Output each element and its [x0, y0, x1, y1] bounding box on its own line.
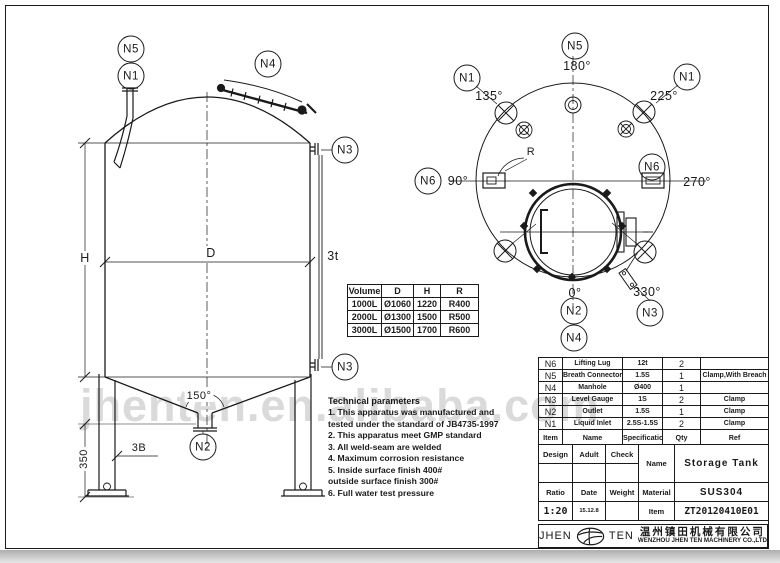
weight-value — [606, 502, 639, 521]
dim-h: H — [78, 251, 92, 265]
part-spec: 1.5S — [623, 370, 663, 382]
tech-item: 2. This apparatus meet GMP standard — [328, 430, 543, 442]
material-value: SUS304 — [675, 483, 769, 502]
part-item: N4 — [539, 382, 563, 394]
parts-row: N3 Level Gauge 1S 2 Clamp — [539, 394, 769, 406]
part-ref: Clamp,With Breach — [701, 370, 769, 382]
part-item: N2 — [539, 406, 563, 418]
part-spec: 12t — [623, 358, 663, 370]
dim-cone-angle: 150° — [185, 390, 214, 402]
part-name: Manhole — [563, 382, 623, 394]
part-name: Lifting Lug — [563, 358, 623, 370]
size-cell: R400 — [441, 298, 479, 311]
part-qty: 1 — [663, 406, 701, 418]
part-spec: Ø400 — [623, 382, 663, 394]
tb-check-label: Check — [606, 445, 639, 464]
parts-row: N2 Outlet 1.5S 1 Clamp — [539, 406, 769, 418]
tb-design-label: Design — [539, 445, 573, 464]
angle-180: 180° — [563, 59, 591, 73]
angle-270: 270° — [683, 175, 711, 189]
part-item: N5 — [539, 370, 563, 382]
size-table: Volume D H R 1000L Ø1060 1220 R400 2000L… — [347, 284, 479, 337]
tv-callout-n3: N3 — [637, 300, 664, 327]
callout-n4: N4 — [255, 51, 282, 78]
tv-callout-n1-left: N1 — [454, 65, 481, 92]
part-qty: 2 — [663, 394, 701, 406]
part-ref: Clamp — [701, 394, 769, 406]
size-header: R — [441, 285, 479, 298]
parts-row: N5 Breath Connector 1.5S 1 Clamp,With Br… — [539, 370, 769, 382]
size-table-row: 1000L Ø1060 1220 R400 — [348, 298, 479, 311]
callout-n3-top: N3 — [332, 137, 359, 164]
angle-0: 0° — [569, 286, 582, 300]
tb-check-value — [606, 464, 639, 483]
callout-n2: N2 — [190, 434, 217, 461]
size-cell: 1220 — [414, 298, 441, 311]
part-name: Level Gauge — [563, 394, 623, 406]
callout-n1: N1 — [118, 63, 145, 90]
tb-design-value — [539, 464, 573, 483]
tv-callout-n6-right: N6 — [639, 154, 666, 181]
part-item: N1 — [539, 418, 563, 430]
company-name-en: WENZHOU JHEN TEN MACHINERY CO.,LTD — [638, 538, 767, 545]
tv-callout-n4: N4 — [561, 325, 588, 352]
size-cell: 2000L — [348, 311, 382, 324]
part-name: Outlet — [563, 406, 623, 418]
tb-date-label: Date — [573, 483, 606, 502]
part-qty: 2 — [663, 418, 701, 430]
title-block: Design Adult Check Name Storage Tank Rat… — [538, 444, 769, 521]
size-table-row: 2000L Ø1300 1500 R500 — [348, 311, 479, 324]
radius-label: R — [527, 146, 535, 158]
dim-3b: 3B — [132, 442, 146, 454]
part-qty: 1 — [663, 370, 701, 382]
page-bottom-strip — [0, 550, 780, 563]
ratio-value: 1:20 — [539, 502, 573, 521]
tech-item: 5. Inside surface finish 400# outside su… — [328, 465, 543, 488]
parts-row: N4 Manhole Ø400 1 — [539, 382, 769, 394]
dim-d: D — [204, 246, 218, 260]
part-ref: Clamp — [701, 418, 769, 430]
tech-item: 6. Full water test pressure — [328, 488, 543, 500]
brand-right: TEN — [609, 530, 634, 542]
tv-callout-n1-right: N1 — [674, 64, 701, 91]
dim-3t: 3t — [327, 249, 338, 263]
company-names: 温州镇田机械有限公司 WENZHOU JHEN TEN MACHINERY CO… — [638, 527, 767, 545]
size-cell: R500 — [441, 311, 479, 324]
callout-n5: N5 — [118, 36, 145, 63]
tb-ratio-label: Ratio — [539, 483, 573, 502]
date-value: 15.12.8 — [573, 502, 606, 521]
dim-350: 350 — [78, 447, 90, 471]
size-cell: Ø1060 — [382, 298, 414, 311]
tv-callout-n2: N2 — [561, 298, 588, 325]
tb-audit-value — [573, 464, 606, 483]
parts-table: N6 Lifting Lug 12t 2 N5 Breath Connector… — [538, 357, 769, 445]
technical-parameters: Technical parameters 1. This apparatus w… — [328, 396, 543, 499]
size-header: Volume — [348, 285, 382, 298]
size-table-row: 3000L Ø1500 1700 R600 — [348, 324, 479, 337]
size-cell: Ø1300 — [382, 311, 414, 324]
parts-header-item: Item — [539, 430, 563, 445]
brand-left: JHEN — [539, 530, 572, 542]
drawing-number: ZT20120410E01 — [675, 502, 769, 521]
parts-header-row: Item Name Specification Qty Ref — [539, 430, 769, 445]
jhenten-logo-icon — [576, 527, 605, 546]
size-cell: 1000L — [348, 298, 382, 311]
size-header: D — [382, 285, 414, 298]
size-cell: Ø1500 — [382, 324, 414, 337]
tb-name-label: Name — [639, 445, 675, 483]
size-cell: 1700 — [414, 324, 441, 337]
tb-item-label: Item — [639, 502, 675, 521]
angle-90: 90° — [448, 174, 468, 188]
part-name: Liquid Inlet — [563, 418, 623, 430]
callout-n3-bottom: N3 — [332, 354, 359, 381]
size-header: H — [414, 285, 441, 298]
tech-item: 1. This apparatus was manufactured and t… — [328, 407, 543, 430]
angle-330: 330° — [633, 285, 661, 299]
size-cell: R600 — [441, 324, 479, 337]
part-name: Breath Connector — [563, 370, 623, 382]
drawing-title: Storage Tank — [675, 445, 769, 483]
tech-title: Technical parameters — [328, 396, 543, 406]
part-spec: 1S — [623, 394, 663, 406]
tv-callout-n5: N5 — [562, 33, 589, 60]
part-item: N6 — [539, 358, 563, 370]
part-item: N3 — [539, 394, 563, 406]
parts-header-name: Name — [563, 430, 623, 445]
part-spec: 2.5S-1.5S — [623, 418, 663, 430]
parts-header-spec: Specification — [623, 430, 663, 445]
part-spec: 1.5S — [623, 406, 663, 418]
parts-header-qty: Qty — [663, 430, 701, 445]
parts-row: N6 Lifting Lug 12t 2 — [539, 358, 769, 370]
tv-callout-n6-left: N6 — [415, 168, 442, 195]
parts-row: N1 Liquid Inlet 2.5S-1.5S 2 Clamp — [539, 418, 769, 430]
part-qty: 2 — [663, 358, 701, 370]
tech-item: 3. All weld-seam are welded — [328, 442, 543, 454]
part-ref — [701, 382, 769, 394]
size-cell: 3000L — [348, 324, 382, 337]
size-cell: 1500 — [414, 311, 441, 324]
angle-225: 225° — [650, 89, 678, 103]
parts-header-ref: Ref — [701, 430, 769, 445]
part-ref — [701, 358, 769, 370]
size-table-header-row: Volume D H R — [348, 285, 479, 298]
tech-item: 4. Maximum corrosion resistance — [328, 453, 543, 465]
part-ref: Clamp — [701, 406, 769, 418]
tb-material-label: Material — [639, 483, 675, 502]
angle-135: 135° — [475, 89, 503, 103]
company-block: JHEN TEN 温州镇田机械有限公司 WENZHOU JHEN TEN MAC… — [538, 524, 768, 548]
tb-weight-label: Weight — [606, 483, 639, 502]
drawing-sheet: jhenten.en.alibaba.com — [0, 0, 780, 563]
part-qty: 1 — [663, 382, 701, 394]
tb-audit-label: Adult — [573, 445, 606, 464]
